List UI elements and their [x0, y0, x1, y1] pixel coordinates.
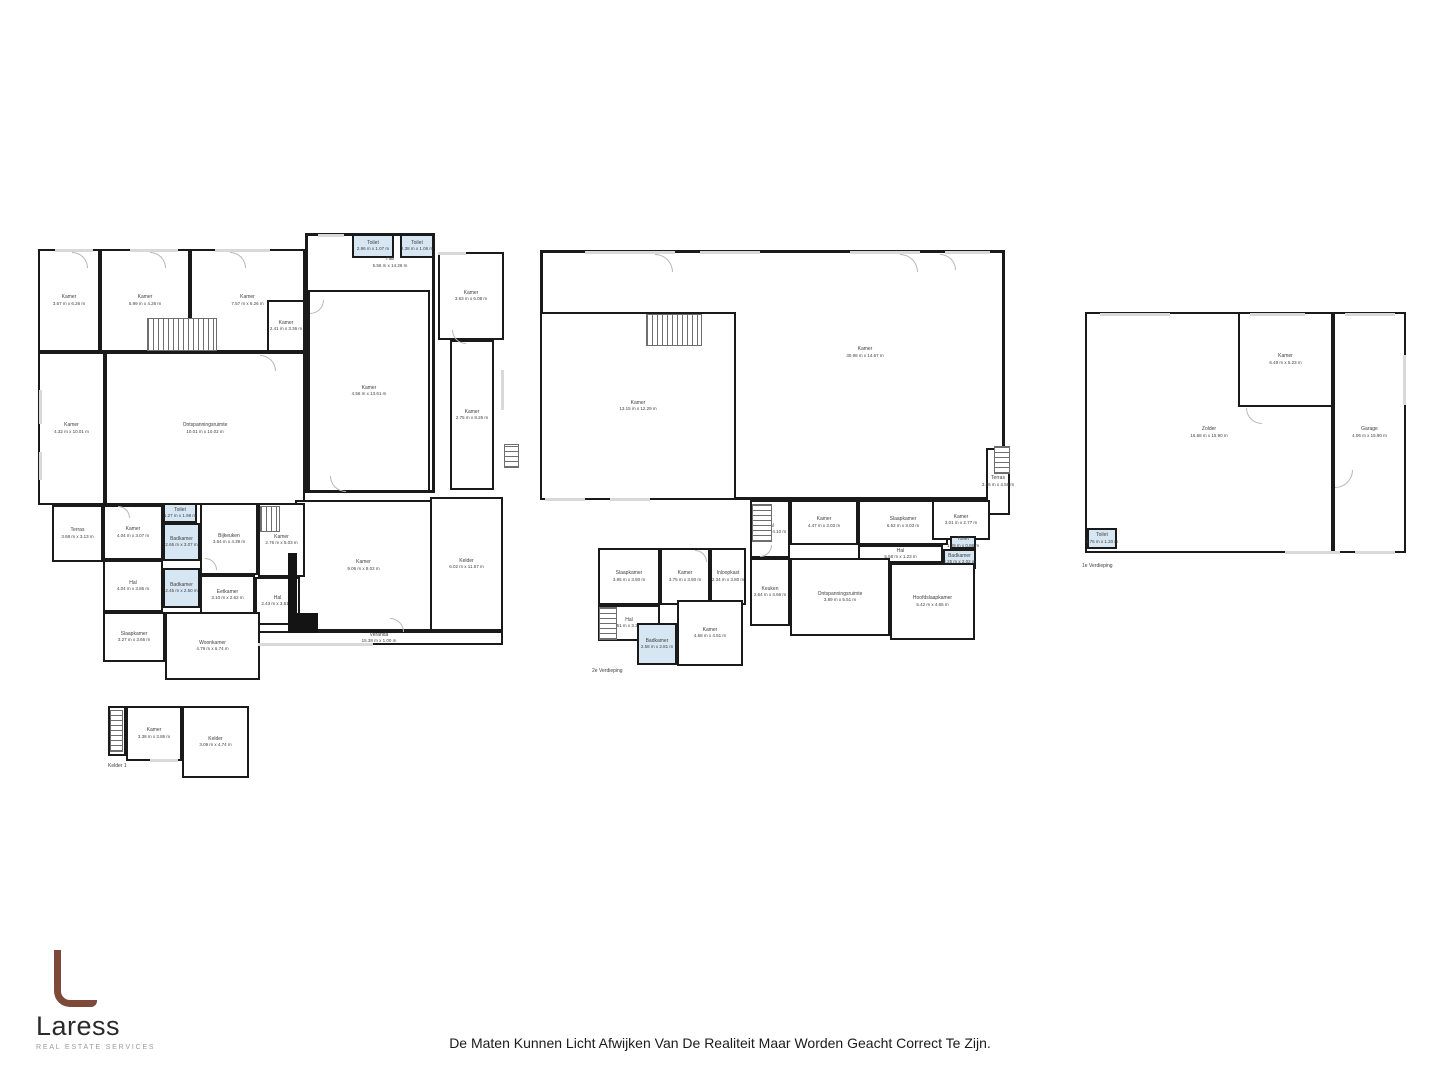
- window: [585, 251, 675, 254]
- room-dimensions: 2.45 m x 2.50 m: [165, 588, 197, 594]
- room-toilet: Toilet2.38 m x 1.06 m: [400, 234, 434, 258]
- room-name: Bijkeuken: [218, 533, 240, 540]
- room-slaapkamer: Slaapkamer3.27 m x 3.66 m: [103, 612, 165, 662]
- room-kamer: Kamer6.49 m x 5.23 m: [1238, 312, 1333, 407]
- room-kamer: Kamer2.41 m x 3.36 m: [267, 300, 305, 352]
- stairs: [752, 504, 772, 542]
- room-name: Veranda: [370, 632, 389, 639]
- room-name: Kamer: [240, 294, 255, 301]
- room-label: Kamer4.32 m x 10.01 m: [40, 354, 103, 503]
- room-kamer: Kamer3.67 m x 6.26 m: [38, 249, 100, 352]
- room-name: Ontspanningsruimte: [818, 591, 863, 598]
- room-keuken: Keuken2.64 m x 4.66 m: [750, 558, 790, 626]
- room-name: Kamer: [678, 570, 693, 577]
- room-dimensions: 4.32 m x 10.01 m: [54, 429, 89, 435]
- room-label: Eetkamer3.10 m x 2.62 m: [202, 577, 253, 613]
- stairs: [260, 506, 280, 532]
- laress-l-icon: [54, 950, 97, 1007]
- room-kamer: Kamer4.58 m x 4.51 m: [677, 600, 743, 666]
- room-dimensions: 2.58 m x 2.81 m: [641, 644, 673, 650]
- room-label: Toilet1.29 m x 0.86 m: [952, 538, 974, 547]
- stairs: [110, 710, 123, 752]
- room-kamer: Kamer4.32 m x 10.01 m: [38, 352, 105, 505]
- room-label: Slaapkamer3.95 m x 3.80 m: [600, 550, 658, 603]
- room-dimensions: 10.01 m x 10.02 m: [186, 429, 223, 435]
- window: [318, 234, 344, 237]
- room-dimensions: 4.56 m x 13.61 m: [352, 391, 387, 397]
- room-slaapkamer: Slaapkamer3.95 m x 3.80 m: [598, 548, 660, 605]
- floorplan-canvas: Kamer3.67 m x 6.26 mKamer5.99 m x 4.26 m…: [0, 0, 1440, 1080]
- room-label: Toilet2.96 m x 1.07 m: [354, 236, 392, 256]
- room-ontspanningsruimte: Ontspanningsruimte3.89 m x 5.51 m: [790, 558, 890, 636]
- room-dimensions: 2.76 m x 5.03 m: [265, 540, 297, 546]
- room-name: Terras: [991, 475, 1005, 482]
- stairs: [599, 607, 617, 640]
- window: [1250, 313, 1305, 316]
- room-dimensions: 3.10 m x 2.62 m: [211, 595, 243, 601]
- room-name: Kelder: [208, 736, 222, 743]
- room-dimensions: 9.06 m x 8.02 m: [347, 566, 379, 572]
- room-label-kamer: Kamer30.98 m x 14.67 m: [810, 346, 920, 358]
- room-dimensions: 3.46 m x 4.56 m: [982, 482, 1014, 488]
- room-name: Slaapkamer: [890, 516, 917, 523]
- room-dimensions: 4.58 m x 4.51 m: [694, 633, 726, 639]
- room-dimensions: 2.65 m x 3.07 m: [165, 542, 197, 548]
- room-name: Inloopkast: [717, 570, 740, 577]
- window: [850, 251, 920, 254]
- room-badkamer: Badkamer2.58 m x 2.81 m: [637, 623, 677, 665]
- room-name: Slaapkamer: [121, 631, 148, 638]
- room-name: Badkamer: [170, 582, 193, 589]
- room-label: Kamer4.47 m x 3.03 m: [792, 502, 856, 543]
- room-label: Kamer4.56 m x 13.61 m: [310, 292, 428, 490]
- room-badkamer: Badkamer2.45 m x 2.50 m: [163, 568, 200, 608]
- window: [501, 370, 504, 410]
- room-label: Kamer3.38 m x 3.86 m: [128, 708, 180, 759]
- room-kamer: Kamer4.47 m x 3.03 m: [790, 500, 858, 545]
- room-dimensions: 2.38 m x 1.06 m: [401, 246, 433, 252]
- room-label: Ontspanningsruimte10.01 m x 10.02 m: [107, 354, 303, 503]
- room-dimensions: 4.04 m x 3.07 m: [117, 533, 149, 539]
- room-dimensions: 6.02 m x 11.57 m: [449, 564, 483, 570]
- room-label-hal: Hal5.56 m x 14.26 m: [345, 256, 435, 268]
- room-dimensions: 3.95 m x 3.80 m: [613, 577, 645, 583]
- room-label: Kelder3.09 m x 4.74 m: [184, 708, 247, 776]
- room-dimensions: 2.96 m x 1.07 m: [357, 246, 389, 252]
- room-label: Toilet1.76 m x 1.20 m: [1089, 530, 1115, 547]
- room-name: Hal: [274, 595, 282, 602]
- room-label: Kamer6.49 m x 5.23 m: [1240, 314, 1331, 405]
- room-kamer: Kamer3.38 m x 3.86 m: [126, 706, 182, 761]
- room-dimensions: 4.04 m x 3.85 m: [117, 586, 149, 592]
- room-dimensions: 3.75 m x 3.80 m: [669, 577, 701, 583]
- room-name: Eetkamer: [217, 589, 238, 596]
- room-name: Kamer: [465, 409, 480, 416]
- shaft: [288, 613, 318, 633]
- room-kamer: Kamer4.56 m x 13.61 m: [308, 290, 430, 492]
- room-kamer: Kamer3.01 m x 2.77 m: [932, 500, 990, 540]
- room-name: Kelder: [459, 558, 473, 565]
- room-label: Kamer3.67 m x 6.26 m: [40, 251, 98, 350]
- room-label: Badkamer2.65 m x 3.07 m: [165, 525, 198, 559]
- room-name: Toilet: [411, 240, 423, 247]
- room-dimensions: 4.79 m x 6.74 m: [196, 646, 228, 652]
- floor-label-kelder-1: Kelder 1: [108, 763, 127, 769]
- room-label: Hal4.04 m x 3.85 m: [105, 562, 161, 610]
- floor-label-2e-verdieping: 2e Verdieping: [592, 668, 623, 674]
- room-kelder: Kelder6.02 m x 11.57 m: [430, 497, 503, 631]
- room-inloopkast: Inloopkast2.34 m x 3.80 m: [710, 548, 746, 605]
- room-label: Toilet1.27 m x 1.98 m: [165, 505, 195, 521]
- room-label: Kamer13.15 m x 12.29 m: [542, 314, 734, 498]
- room-terras: Terras3.68 m x 3.13 m: [52, 505, 103, 562]
- window: [39, 452, 42, 480]
- room-name: Hoofdslaapkamer: [913, 595, 952, 602]
- window: [1100, 313, 1170, 316]
- window: [39, 390, 42, 424]
- room-kamer: Kamer2.75 m x 8.26 m: [450, 340, 494, 490]
- room-toilet: Toilet1.76 m x 1.20 m: [1087, 528, 1117, 549]
- room-dimensions: 5.42 m x 4.65 m: [916, 602, 948, 608]
- room-name: Hal: [129, 580, 137, 587]
- room-eetkamer: Eetkamer3.10 m x 2.62 m: [200, 575, 255, 615]
- room-name: Kamer: [362, 385, 377, 392]
- room-name: Kamer: [1278, 353, 1293, 360]
- room-label: Badkamer2.45 m x 2.50 m: [165, 570, 198, 606]
- room-name: Kamer: [62, 294, 77, 301]
- stairs: [147, 318, 217, 351]
- room-name: Toilet: [174, 507, 186, 514]
- stairs: [994, 446, 1010, 474]
- floor-label-1e-verdieping: 1e Verdieping: [1082, 563, 1113, 569]
- room-dimensions: 4.06 m x 15.90 m: [1352, 433, 1387, 439]
- room-name: Kamer: [631, 400, 646, 407]
- window: [1345, 313, 1395, 316]
- window: [610, 498, 650, 501]
- room-name: Badkamer: [646, 638, 669, 645]
- room-label: Garage4.06 m x 15.90 m: [1335, 314, 1404, 551]
- window: [438, 252, 466, 255]
- room-name: Slaapkamer: [616, 570, 643, 577]
- window: [1355, 551, 1395, 554]
- room-label: Ontspanningsruimte3.89 m x 5.51 m: [792, 560, 888, 634]
- window: [1285, 551, 1340, 554]
- room-toilet: Toilet2.96 m x 1.07 m: [352, 234, 394, 258]
- window: [945, 251, 990, 254]
- stairs: [504, 444, 519, 468]
- room-dimensions: 3.38 m x 3.86 m: [138, 734, 170, 740]
- room-dimensions: 3.67 m x 6.26 m: [53, 301, 85, 307]
- room-dimensions: 2.41 m x 3.36 m: [270, 326, 302, 332]
- room-garage: Garage4.06 m x 15.90 m: [1333, 312, 1406, 553]
- room-name: Ontspanningsruimte: [183, 422, 228, 429]
- room-dimensions: 3.54 m x 4.39 m: [213, 539, 245, 545]
- room-label: Kamer3.63 m x 6.08 m: [440, 254, 502, 338]
- room-name: Kamer: [126, 526, 141, 533]
- room-name: Garage: [1361, 426, 1378, 433]
- room-dimensions: 2.64 m x 4.66 m: [754, 592, 786, 598]
- room-name: Toilet: [957, 536, 969, 543]
- window: [545, 498, 585, 501]
- window: [258, 643, 373, 646]
- room-dimensions: 3.09 m x 4.74 m: [199, 742, 231, 748]
- room-label: Inloopkast2.34 m x 3.80 m: [712, 550, 744, 603]
- room-dimensions: 4.47 m x 3.03 m: [808, 523, 840, 529]
- room-name: Kamer: [64, 422, 79, 429]
- room-dimensions: 1.29 m x 0.86 m: [947, 543, 979, 549]
- room-dimensions: 2.75 m x 8.26 m: [456, 415, 488, 421]
- room-toilet: Toilet1.27 m x 1.98 m: [163, 503, 197, 523]
- room-label: Kamer4.04 m x 3.07 m: [105, 507, 161, 558]
- room-name: Badkamer: [948, 553, 971, 560]
- room-woonkamer: Woonkamer4.79 m x 6.74 m: [165, 612, 260, 680]
- room-kamer: Kamer4.04 m x 3.07 m: [103, 505, 163, 560]
- room-dimensions: 6.49 m x 5.23 m: [1269, 360, 1301, 366]
- room-label: Hoofdslaapkamer5.42 m x 4.65 m: [892, 565, 973, 638]
- room-label: Toilet2.38 m x 1.06 m: [402, 236, 432, 256]
- window: [215, 249, 270, 252]
- room-label: Badkamer2.58 m x 2.81 m: [639, 625, 675, 663]
- room-name: Terras: [71, 527, 85, 534]
- room-dimensions: 3.01 m x 2.77 m: [945, 520, 977, 526]
- room-dimensions: 1.76 m x 1.20 m: [1086, 539, 1118, 545]
- room-dimensions: 5.56 m x 14.26 m: [373, 263, 408, 269]
- room-kelder: Kelder3.09 m x 4.74 m: [182, 706, 249, 778]
- room-name: Woonkamer: [199, 640, 226, 647]
- disclaimer-text: De Maten Kunnen Licht Afwijken Van De Re…: [0, 1035, 1440, 1051]
- room-label: Woonkamer4.79 m x 6.74 m: [167, 614, 258, 678]
- room-name: Kamer: [279, 320, 294, 327]
- room-dimensions: 3.89 m x 5.51 m: [824, 597, 856, 603]
- room-dimensions: 6.52 m x 3.03 m: [887, 523, 919, 529]
- room-badkamer: Badkamer2.65 m x 3.07 m: [163, 523, 200, 561]
- room-label: Kelder6.02 m x 11.57 m: [432, 499, 501, 629]
- window: [1403, 355, 1406, 405]
- room-dimensions: 3.63 m x 6.08 m: [455, 296, 487, 302]
- room-dimensions: 16.68 m x 15.90 m: [1190, 433, 1227, 439]
- room-name: Kamer: [464, 290, 479, 297]
- room-name: Hal: [625, 617, 633, 624]
- room-name: Hal: [897, 548, 905, 555]
- room-kamer: Kamer3.63 m x 6.08 m: [438, 252, 504, 340]
- room-ontspanningsruimte: Ontspanningsruimte10.01 m x 10.02 m: [105, 352, 305, 505]
- room-kamer: Kamer9.06 m x 8.02 m: [295, 500, 432, 631]
- room-dimensions: 1.27 m x 1.98 m: [164, 513, 196, 519]
- room-dimensions: 30.98 m x 14.67 m: [846, 353, 883, 359]
- room-name: Toilet: [367, 240, 379, 247]
- room-dimensions: 13.15 m x 12.29 m: [619, 406, 656, 412]
- room-label: Keuken2.64 m x 4.66 m: [752, 560, 788, 624]
- room-name: Toilet: [1096, 532, 1108, 539]
- room-name: Kamer: [817, 516, 832, 523]
- room-label: Kamer3.01 m x 2.77 m: [934, 502, 988, 538]
- room-name: Kamer: [138, 294, 153, 301]
- room-hoofdslaapkamer: Hoofdslaapkamer5.42 m x 4.65 m: [890, 563, 975, 640]
- room-toilet: Toilet1.29 m x 0.86 m: [950, 536, 976, 549]
- room-name: Zolder: [1202, 426, 1216, 433]
- room-name: Keuken: [762, 586, 779, 593]
- room-label: Kamer2.41 m x 3.36 m: [269, 302, 303, 350]
- room-name: Kamer: [703, 627, 718, 634]
- room-name: Kamer: [954, 514, 969, 521]
- window: [150, 759, 178, 762]
- room-dimensions: 7.57 m x 6.26 m: [231, 301, 263, 307]
- room-dimensions: 3.68 m x 3.13 m: [61, 534, 93, 540]
- room-name: Badkamer: [170, 536, 193, 543]
- room-label: Kamer9.06 m x 8.02 m: [297, 502, 430, 629]
- room-dimensions: 2.34 m x 3.80 m: [712, 577, 744, 583]
- room-label: Kamer4.58 m x 4.51 m: [679, 602, 741, 664]
- room-dimensions: 5.99 m x 4.26 m: [129, 301, 161, 307]
- room-label: Terras3.68 m x 3.13 m: [54, 507, 101, 560]
- room-label: Kamer2.75 m x 8.26 m: [452, 342, 492, 488]
- room-kamer: Kamer13.15 m x 12.29 m: [540, 312, 736, 500]
- room-name: Kamer: [274, 534, 289, 541]
- room-label: Veranda15.38 m x 1.00 m: [257, 633, 501, 643]
- room-hal: Hal4.04 m x 3.85 m: [103, 560, 163, 612]
- window: [700, 251, 760, 254]
- room-dimensions: 3.27 m x 3.66 m: [118, 637, 150, 643]
- room-name: Kamer: [147, 727, 162, 734]
- room-name: Kamer: [356, 559, 371, 566]
- stairs: [646, 314, 702, 346]
- room-label: Slaapkamer3.27 m x 3.66 m: [105, 614, 163, 660]
